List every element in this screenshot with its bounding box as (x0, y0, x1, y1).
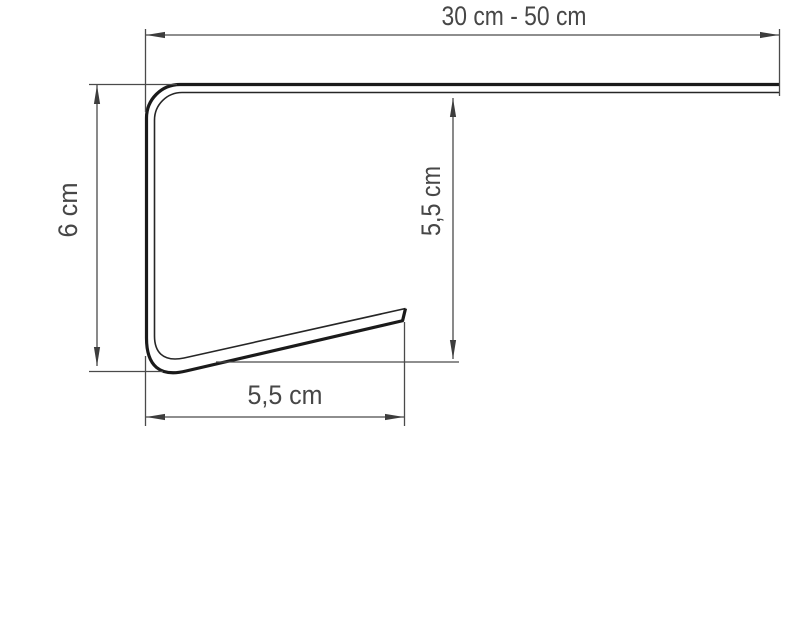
dimension-inner-height: 5,5 cm (216, 98, 459, 362)
arrowhead-left-icon (146, 414, 165, 420)
arrowhead-down-icon (450, 340, 456, 359)
arrowhead-up-icon (450, 98, 456, 117)
diagram-canvas: 30 cm - 50 cm 6 cm 5,5 cm 5,5 cm (0, 0, 800, 639)
dimension-label-left-height: 6 cm (53, 183, 83, 238)
arrowhead-down-icon (94, 347, 100, 366)
profile-outline (147, 85, 780, 373)
dimension-label-bottom-depth: 5,5 cm (248, 380, 323, 410)
profile-inner-edge (155, 93, 780, 359)
arrowhead-left-icon (146, 32, 165, 38)
arrowhead-right-icon (385, 414, 404, 420)
dimension-label-top-width: 30 cm - 50 cm (442, 1, 587, 31)
profile-end-cap (403, 309, 406, 322)
profile-cross-section-diagram: 30 cm - 50 cm 6 cm 5,5 cm 5,5 cm (0, 0, 800, 639)
dimension-label-inner-height: 5,5 cm (416, 166, 446, 236)
arrowhead-right-icon (760, 32, 779, 38)
dimension-left-height: 6 cm (53, 85, 177, 372)
profile-outer-edge (147, 85, 780, 373)
dimension-top-width: 30 cm - 50 cm (146, 1, 780, 112)
arrowhead-up-icon (94, 85, 100, 104)
